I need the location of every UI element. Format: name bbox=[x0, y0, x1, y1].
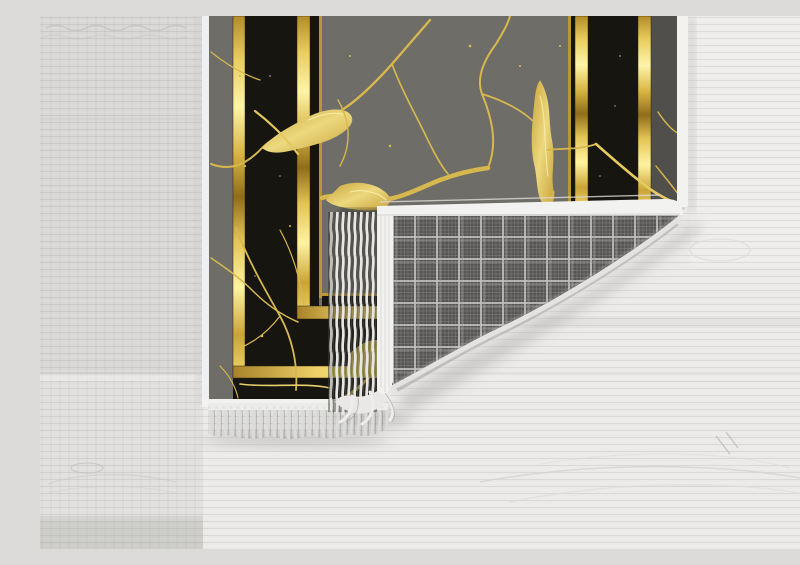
rug-binding-right bbox=[677, 16, 688, 216]
gold-pinstripe-left bbox=[319, 16, 322, 298]
left-edge-shadow bbox=[196, 16, 202, 404]
gold-line-inner-right bbox=[575, 16, 588, 211]
floor-grain-vertical bbox=[40, 16, 203, 549]
gold-pinstripe-right bbox=[568, 16, 571, 206]
photo-canvas bbox=[40, 16, 800, 549]
gold-line-inner-left bbox=[297, 16, 310, 319]
rug-binding-left bbox=[202, 16, 209, 407]
right-edge-shadow bbox=[688, 18, 696, 212]
rug-product-photo: Product photo of a marble-patterned area… bbox=[40, 16, 800, 549]
